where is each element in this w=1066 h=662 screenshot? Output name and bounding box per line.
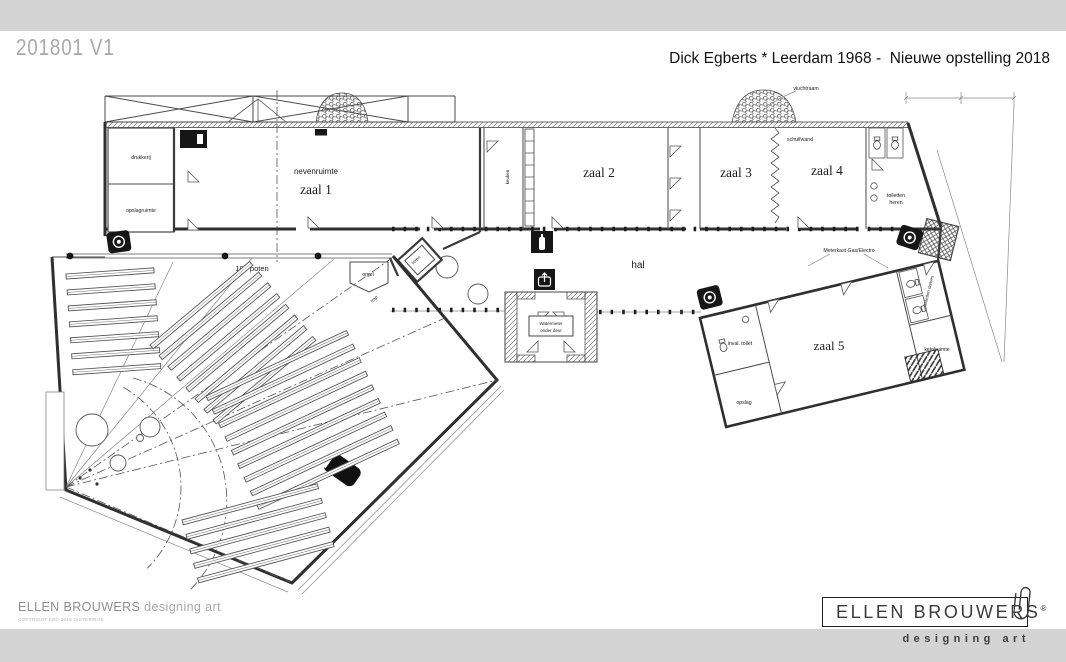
zaal2-label: zaal 2 <box>583 165 615 180</box>
opslag-label: opslag <box>736 400 751 406</box>
credit-studio-name: ELLEN BROUWERS <box>18 600 140 614</box>
toiletten-label: toiletten <box>887 193 905 199</box>
pew-block-middle <box>206 330 399 509</box>
floor-plan: vluchtraam drukkerij opslagruimte <box>0 0 1066 662</box>
inval-toilet-label: inval. toilet <box>728 341 753 347</box>
vestibule-note-1: Watermeter <box>539 321 563 326</box>
trap-label: trap <box>369 294 378 303</box>
registered-mark: ® <box>1040 604 1046 613</box>
hal-label: hal <box>631 260 644 271</box>
north-wall <box>105 122 908 128</box>
gravel-patch-right <box>732 90 796 122</box>
room-keuken: keuken <box>484 128 534 229</box>
zaal5-label: zaal 5 <box>814 338 845 353</box>
room-toiletten-heren: toiletten heren <box>866 128 905 229</box>
zaal4-label: zaal 4 <box>811 163 843 178</box>
zaal3-label: zaal 3 <box>720 165 752 180</box>
paperclip-icon <box>1014 582 1034 622</box>
ketelruimte-label: ketelruimte <box>924 347 949 353</box>
bottle-pictogram <box>531 231 553 253</box>
sanctuary: 100 poten <box>46 253 504 594</box>
gravel-patch-left <box>316 93 368 122</box>
logo-tagline: designing art <box>902 633 1030 645</box>
divider-doors <box>668 128 700 229</box>
entrance-vestibule: Watermeter onder deur <box>505 292 597 362</box>
schuifwand-zigzag <box>771 128 779 223</box>
toren-orgel: toren orgel trap <box>350 232 480 303</box>
room-zaal-1: nevenruimte zaal 1 <box>180 128 480 232</box>
vestibule-note-2: onder deur <box>540 328 562 333</box>
copyright-line: COPYRIGHT EB© 2018 OISTERWIJK <box>18 617 104 622</box>
opslagruimte-label: opslagruimte <box>126 208 156 214</box>
hal: hal <box>106 230 701 312</box>
pew-block-left <box>66 268 161 375</box>
credit-line: ELLEN BROUWERS designing art <box>18 600 221 614</box>
meterkast-annotation: Meterkast Gas/Electro <box>808 248 888 268</box>
studio-logo-box: ELLEN BROUWERS® <box>822 597 1028 627</box>
room-zaal-4: zaal 4 <box>798 163 843 228</box>
keuken-label: keuken <box>505 169 510 184</box>
drukkerij-label: drukkerij <box>131 155 151 161</box>
zaal1-label: zaal 1 <box>300 182 332 197</box>
meterkast-label: Meterkast Gas/Electro <box>823 248 874 254</box>
credit-tagline: designing art <box>144 600 221 614</box>
exit-pictogram <box>534 269 555 290</box>
vluchtraam-label: vluchtraam <box>793 86 818 92</box>
schuifwand-label: schuifwand <box>787 137 813 143</box>
room-zaal-3: zaal 3 schuifwand <box>720 128 813 223</box>
drawing-sheet: 201801 V1 Dick Egberts * Leerdam 1968 - … <box>0 0 1066 662</box>
heren-label: heren <box>889 200 902 206</box>
meter-note-box <box>529 316 573 336</box>
room-zaal-2: zaal 2 <box>552 165 615 228</box>
orgel-label: orgel <box>362 272 374 278</box>
zaal5-wing: zaal 5 inval. toilet opslag ketelruimte … <box>696 227 964 427</box>
nevenruimte-label: nevenruimte <box>294 167 339 176</box>
